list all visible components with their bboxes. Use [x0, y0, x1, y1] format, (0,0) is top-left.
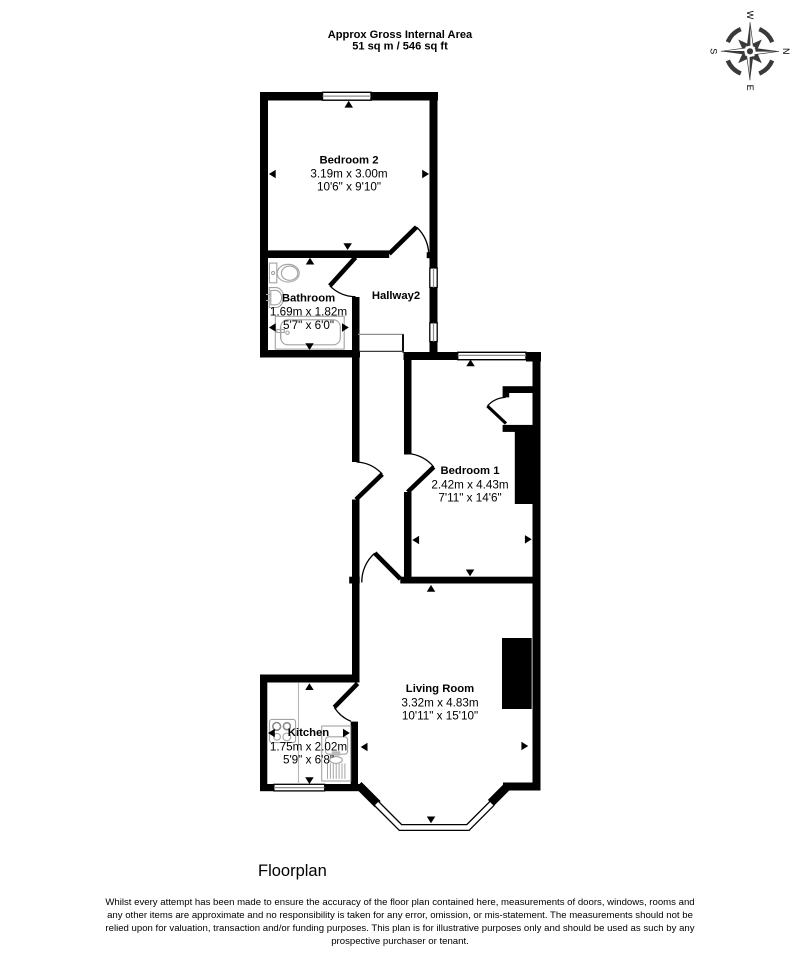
- svg-text:Whilst every attempt has been: Whilst every attempt has been made to en…: [105, 897, 694, 908]
- svg-text:1.69m x 1.82m: 1.69m x 1.82m: [270, 306, 347, 319]
- svg-text:Bedroom 2: Bedroom 2: [319, 154, 378, 166]
- svg-text:Floorplan: Floorplan: [258, 862, 327, 880]
- svg-text:10'11" x 15'10": 10'11" x 15'10": [402, 710, 478, 723]
- svg-text:any other items are approximat: any other items are approximate and no r…: [107, 910, 693, 921]
- svg-text:Bedroom 1: Bedroom 1: [440, 465, 499, 477]
- svg-text:Approx Gross Internal Area: Approx Gross Internal Area: [328, 29, 473, 41]
- svg-text:5'7" x 6'0": 5'7" x 6'0": [283, 319, 334, 332]
- svg-text:3.32m x 4.83m: 3.32m x 4.83m: [401, 696, 478, 709]
- svg-text:1.75m x 2.02m: 1.75m x 2.02m: [270, 740, 347, 753]
- svg-text:Living Room: Living Room: [406, 683, 474, 695]
- svg-text:51 sq m / 546 sq ft: 51 sq m / 546 sq ft: [352, 41, 448, 53]
- svg-text:prospective purchaser or tenan: prospective purchaser or tenant.: [331, 936, 469, 947]
- svg-text:3.19m x 3.00m: 3.19m x 3.00m: [310, 168, 387, 181]
- svg-text:S: S: [709, 48, 719, 54]
- svg-text:relied upon for valuation, tra: relied upon for valuation, transaction a…: [105, 923, 694, 934]
- svg-text:5'9" x 6'8": 5'9" x 6'8": [283, 754, 334, 767]
- svg-text:Kitchen: Kitchen: [288, 727, 330, 739]
- svg-text:N: N: [781, 48, 791, 55]
- svg-text:Hallway2: Hallway2: [372, 290, 420, 302]
- svg-text:2.42m x 4.43m: 2.42m x 4.43m: [431, 478, 508, 491]
- svg-text:W: W: [745, 11, 755, 20]
- svg-text:E: E: [745, 85, 755, 91]
- svg-text:7'11" x 14'6": 7'11" x 14'6": [438, 492, 501, 505]
- svg-text:Bathroom: Bathroom: [282, 293, 335, 305]
- svg-text:10'6" x 9'10": 10'6" x 9'10": [317, 181, 381, 194]
